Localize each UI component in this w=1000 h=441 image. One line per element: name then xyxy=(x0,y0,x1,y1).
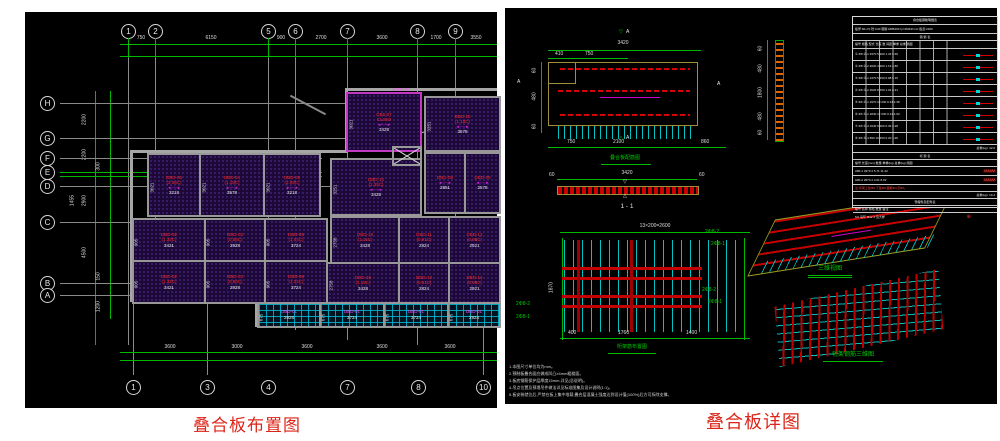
slab-dim: 3724 xyxy=(291,243,301,249)
dim-text: 60 xyxy=(759,46,764,52)
edge-bar xyxy=(630,240,633,332)
slab-side-dim: 675 xyxy=(258,314,263,322)
layout-drawing-panel: 1 2 5 6 7 8 9 750 6150 900 2700 3600 170… xyxy=(25,12,497,408)
slab-side-dim: 2758 xyxy=(329,280,334,290)
slab-panel: DBD-10(1.35C)◄──►34283251 xyxy=(330,158,422,216)
table-row: ⑤ Φ6 ④-1 1970 10 200 0.44 4.38 xyxy=(853,97,997,109)
slab-side-dim: 3021 xyxy=(349,119,354,129)
dim-line xyxy=(548,147,726,148)
slab-panel: DBD-05(1.04C)3724905 xyxy=(264,218,328,262)
grid-label: 5 xyxy=(266,27,270,36)
table-band: 钢 筋 表 xyxy=(853,34,997,41)
dim-line xyxy=(560,232,750,233)
dim-text: 3600 xyxy=(444,345,455,350)
embed-part-icon: ⊕ xyxy=(967,215,971,220)
table-cell-text: ③ Φ8 ③-1 2470 5 150 0.98 5.15 xyxy=(855,77,898,80)
rebar-shape-icon xyxy=(963,103,993,104)
rebar-leader: 2Φ8-1 xyxy=(708,300,722,305)
table-header-text: 编号 长度(mm) 数量 单重(kg) 总重(kg) 简图 xyxy=(855,162,913,165)
grid-bubble: F xyxy=(40,151,55,166)
table-row: A80-1 3370 2 5.71 11.42∧∧∧∧∧∧ xyxy=(853,167,997,176)
grid-bubble: E xyxy=(40,165,55,180)
edge-section-strip xyxy=(775,40,784,142)
slab-side-dim: 675 xyxy=(320,314,325,322)
grid-label: 3 xyxy=(205,383,209,392)
grid-label: F xyxy=(45,154,50,163)
dim-text: 480 xyxy=(759,112,764,120)
rebar-shape-icon xyxy=(963,55,993,56)
dim-text: 1455 xyxy=(71,195,76,206)
table-cell-text: ⑧ Φ6 ⑤-4 890 10 250 0.20 1.96 xyxy=(855,137,898,140)
dim-text: 3550 xyxy=(470,36,481,41)
dim-line xyxy=(110,91,111,319)
table-cell-text: ⑥ Φ6 ④-2 1840 12 200 0.41 4.90 xyxy=(855,113,900,116)
grid-bubble: C xyxy=(40,215,55,230)
slab-panel: DBD-03(0.88C)2928905 xyxy=(204,218,266,262)
dim-tick xyxy=(128,38,129,60)
view-caption: 桁架钢筋三维图 xyxy=(832,352,874,358)
dim-text: 2900 xyxy=(83,195,88,206)
table-title-text: 叠合板钢筋明细表 xyxy=(913,19,937,22)
dim-text: 1700 xyxy=(430,36,441,41)
rebar-shape-icon xyxy=(963,67,993,68)
detail-drawing-panel: 3420 410 750 750 2100 860 60 480 60 ▽ A … xyxy=(505,8,997,404)
grid-bubble: 1 xyxy=(121,24,136,39)
table-cell-text: ② Φ8 ②-2 3020 4 200 1.19 4.80 xyxy=(855,65,898,68)
slab-panel: DBD-04(1.18C)◄──►35783021 xyxy=(199,153,265,217)
dim-text: 150 xyxy=(97,272,102,280)
grid-label: 4 xyxy=(266,383,270,392)
dim-tick xyxy=(155,38,156,60)
dim-text: 2200 xyxy=(83,114,88,125)
dim-text: 750 xyxy=(137,36,145,41)
dim-line xyxy=(120,56,497,57)
right-drawing-title: 叠合板详图 xyxy=(706,408,801,434)
dim-text: 750 xyxy=(567,140,575,145)
slab-dim: 3724 xyxy=(347,315,357,321)
table-total-row: 总重(kg): 42.6 xyxy=(853,145,997,153)
grid-bubble: 3 xyxy=(200,380,215,395)
table-total-text: 总重(kg): 19.4 xyxy=(976,194,995,197)
table-cell-text: ① Φ8 ②-1 3370 5 200 1.33 6.65 xyxy=(855,53,898,56)
slab-side-dim: 675 xyxy=(448,314,453,322)
slab-panel: DBD-11(0.91C)2824 xyxy=(398,216,450,264)
table-header-text: 编号 名称 规格 数量 备注 xyxy=(855,208,888,211)
table-row: M1 吊环 Φ12 4 见大样⊕ xyxy=(853,213,997,222)
table-note-row: 注:桁架上弦Φ8,下弦Φ8,腹筋Φ4,高80。 xyxy=(853,185,997,192)
general-note: 3.板底钢筋保护层厚度15mm,详见(总说明)。 xyxy=(509,378,587,384)
table-row: ① Φ8 ②-1 3370 5 200 1.33 6.65 xyxy=(853,49,997,61)
table-cell-text: A80-2 2670 2 4.01 8.02 xyxy=(855,179,886,182)
dim-text: 60 xyxy=(533,68,538,74)
grid-label: 8 xyxy=(415,27,419,36)
slab-dim: 3218 xyxy=(169,190,179,196)
slab-dim: 2928 xyxy=(284,315,294,321)
dim-line xyxy=(557,179,697,180)
slab-panel: DBD-05(1.04C)3724905 xyxy=(264,260,328,304)
dim-tick xyxy=(268,38,269,60)
table-row: ⑧ Φ6 ⑤-4 890 10 250 0.20 1.96 xyxy=(853,133,997,145)
slab-side-dim: 3251 xyxy=(333,184,338,194)
grid-bubble: D xyxy=(40,179,55,194)
slab-dim: 3428 xyxy=(371,192,381,198)
rebar-leader: 2Φ8-1 xyxy=(711,242,725,247)
dim-tick xyxy=(347,38,348,60)
slab-panel: DBD-012928675 xyxy=(257,302,321,328)
general-note: 5.板安装就位后,严禁在板上集中堆载,叠合层混凝土强度达到设计值(100%)后方… xyxy=(509,392,671,398)
table-header: 编号 规格 型式 长度 数 间距 单重 总重 简图 xyxy=(853,41,997,49)
grid-line xyxy=(133,300,134,375)
section-mark-label: A xyxy=(626,136,629,141)
rebar-leader: 2Φ8-1 xyxy=(516,315,530,320)
slab-dim: 2921 xyxy=(469,243,479,249)
slab-side-dim: 3251 xyxy=(427,121,432,131)
slab-panel: DBD-02(1.32C)3421905 xyxy=(132,218,206,262)
grid-bubble: 2 xyxy=(148,24,163,39)
table-row: ③ Φ8 ③-1 2470 5 150 0.98 5.15 xyxy=(853,73,997,85)
grid-bubble: H xyxy=(40,96,55,111)
break-mark: △ xyxy=(623,194,627,199)
grid-label: C xyxy=(45,218,51,227)
frame-line xyxy=(744,238,745,340)
grid-bubble: 5 xyxy=(261,24,276,39)
rebar-row xyxy=(558,90,690,92)
dim-text: 60 xyxy=(533,124,538,130)
section-mark-label: A xyxy=(626,30,629,35)
dim-text: 3420 xyxy=(621,171,632,176)
grid-label: B xyxy=(45,279,50,288)
section-mark: △ xyxy=(619,136,623,141)
general-note: 1.本图尺寸单位均为mm。 xyxy=(509,364,555,370)
dim-text: 60 xyxy=(699,173,705,178)
table-cell-text: ④ Φ8 ③-2 2620 8 150 1.04 8.31 xyxy=(855,89,898,92)
slab-side-dim: 905 xyxy=(265,281,270,289)
dim-text: 3000 xyxy=(231,345,242,350)
dim-text: 2700 xyxy=(315,36,326,41)
rebar-leader: 2Φ8-2 xyxy=(702,288,716,293)
dim-text: 750 xyxy=(585,52,593,57)
grid-label: E xyxy=(45,168,50,177)
grid-label: 7 xyxy=(345,383,349,392)
slab-panel: DBD-15(1.18C)◄──►35783251 xyxy=(424,96,501,152)
dim-text: 60 xyxy=(549,173,555,178)
slab-panel: DBD-13(0.91C)2824 xyxy=(398,262,450,304)
grid-label: D xyxy=(45,182,51,191)
slab-side-dim: 905 xyxy=(133,239,138,247)
slab-panel: DBD-14(0.95C)2921 xyxy=(448,262,501,304)
dim-line xyxy=(767,40,768,140)
edge-bar xyxy=(577,240,580,332)
slab-dim: 3578 xyxy=(227,190,237,196)
dim-text: 410 xyxy=(555,52,563,57)
dim-text: 480 xyxy=(759,64,764,72)
slab-panel: DBD-12(0.95C)2921 xyxy=(448,216,501,264)
slab-dim: 2928 xyxy=(230,285,240,291)
truss-shape-icon: ∧∧∧∧∧∧ xyxy=(983,178,995,182)
caption-underline xyxy=(601,164,651,165)
grid-label: 8 xyxy=(416,383,420,392)
grid-bubble: 8 xyxy=(411,380,426,395)
dim-line xyxy=(120,360,497,361)
dim-text: 480 xyxy=(533,92,538,100)
view-caption: 叠合板配筋图 xyxy=(610,156,640,161)
dim-text: 1400 xyxy=(686,331,697,336)
dim-text: 6150 xyxy=(205,36,216,41)
caption-underline xyxy=(608,353,656,354)
break-mark: ▽ xyxy=(623,180,627,185)
grid-line xyxy=(60,138,346,139)
slab-side-dim: 905 xyxy=(133,281,138,289)
table-cell-text: M1 吊环 Φ12 4 见大样 xyxy=(855,216,885,219)
caption-underline xyxy=(808,277,852,278)
dim-text: 3600 xyxy=(301,345,312,350)
rebar-row xyxy=(560,68,690,70)
table-band: 预埋件及配件表 xyxy=(853,199,997,206)
table-header-text: 编号 规格 型式 长度 数 间距 单重 总重 简图 xyxy=(855,43,913,46)
slab-panel: DBD-013724675 xyxy=(319,302,385,328)
table-band-text: 桁 架 表 xyxy=(920,155,931,158)
dim-text: 1800 xyxy=(759,87,764,98)
grid-label: 9 xyxy=(453,27,457,36)
slab-plan-notch xyxy=(548,62,576,84)
table-title: 叠合板钢筋明细表 xyxy=(853,17,997,25)
section-mark-label: A xyxy=(717,82,720,87)
table-total-text: 总重(kg): 42.6 xyxy=(976,147,995,150)
grid-label: 10 xyxy=(479,383,488,392)
dim-line xyxy=(120,44,497,45)
distribution-bars xyxy=(564,240,744,332)
slab-dim: 3428 xyxy=(358,286,368,292)
general-note: 2.预制板叠合面应做成凹凸≥4mm粗糙面。 xyxy=(509,371,583,377)
slab-dim: 2928 xyxy=(230,243,240,249)
dim-tick xyxy=(417,38,418,60)
table-cell-text: ⑦ Φ6 ④-3 1640 9 200 0.36 3.28 xyxy=(855,125,898,128)
rebar-leader: 2Φ8-2 xyxy=(705,230,719,235)
table-band: 桁 架 表 xyxy=(853,153,997,160)
table-row: ⑥ Φ6 ④-2 1840 12 200 0.41 4.90 xyxy=(853,109,997,121)
cad-screenshot: 1 2 5 6 7 8 9 750 6150 900 2700 3600 170… xyxy=(0,0,1000,441)
slab-dim: 3724 xyxy=(291,285,301,291)
slab-side-dim: 3021 xyxy=(266,182,271,192)
slab-dim: 2578 xyxy=(477,185,487,191)
dim-text: 3600 xyxy=(376,345,387,350)
dim-text: 860 xyxy=(701,140,709,145)
general-note: 4.吊点位置及预埋吊件做法详见标准图集及设计说明(1:1)。 xyxy=(509,385,613,391)
slab-dim: 2824 xyxy=(419,243,429,249)
table-cell-text: A80-1 3370 2 5.71 11.42 xyxy=(855,170,888,173)
grid-bubble: 4 xyxy=(261,380,276,395)
dim-text: 1200 xyxy=(97,301,102,312)
slab-side-dim: 905 xyxy=(205,239,210,247)
slab-panel: DBD-06(2.08C)◄──►32183021 xyxy=(147,153,201,217)
dim-line xyxy=(548,58,628,59)
grid-line xyxy=(128,58,129,345)
dim-tick xyxy=(455,38,456,60)
slab-panel: DBD-03(0.88C)2928905 xyxy=(204,260,266,304)
slab-side-dim: 675 xyxy=(384,314,389,322)
rebar-shape-icon xyxy=(963,127,993,128)
grid-line xyxy=(60,222,132,223)
rebar-leader: 2Φ8-2 xyxy=(516,302,530,307)
slab-panel: DBD-16(1.15C)34282758 xyxy=(326,262,400,304)
caption-underline xyxy=(808,275,852,276)
dim-line xyxy=(541,62,542,133)
rebar-shape-icon xyxy=(963,115,993,116)
dim-text: 3420 xyxy=(617,41,628,46)
view-caption: 桁架筋布置图 xyxy=(617,345,647,350)
grid-label: 6 xyxy=(293,27,297,36)
slab-dim: 3428 xyxy=(379,127,389,133)
rebar-schedule-table: 叠合板钢筋明细表 板厚:60+70 砼:C30 钢筋:HRB400 fy=360… xyxy=(852,16,998,208)
table-note-text: 注:桁架上弦Φ8,下弦Φ8,腹筋Φ4,高80。 xyxy=(855,187,907,190)
dim-text: 3600 xyxy=(376,36,387,41)
slab-dim: 2921 xyxy=(469,286,479,292)
grid-label: 1 xyxy=(126,27,130,36)
slab-dim: 2851 xyxy=(440,185,450,191)
dim-text: 1870 xyxy=(550,282,555,293)
section-mark: ▽ xyxy=(619,30,623,35)
slab-dim: 2824 xyxy=(419,286,429,292)
grid-label: G xyxy=(44,134,50,143)
stair-opening xyxy=(392,146,422,166)
section-label: 1 - 1 xyxy=(620,204,633,211)
slab-panel: DBD-09◄──►2578 xyxy=(464,152,501,214)
section-mark-label: A xyxy=(517,80,520,85)
grid-bubble: A xyxy=(40,288,55,303)
slab-panel: DBD-013724675 xyxy=(383,302,449,328)
left-drawing-title: 叠合板布置图 xyxy=(193,411,301,436)
table-row: ② Φ8 ②-2 3020 4 200 1.19 4.80 xyxy=(853,61,997,73)
grid-bubble: 6 xyxy=(288,24,303,39)
table-header: 编号 长度(mm) 数量 单重(kg) 总重(kg) 简图 xyxy=(853,160,997,167)
grid-bubble: 7 xyxy=(340,24,355,39)
dim-text: 3600 xyxy=(164,345,175,350)
grid-label: 2 xyxy=(153,27,157,36)
section-1-1-outline xyxy=(557,186,699,195)
table-cell-text: ⑤ Φ6 ④-1 1970 10 200 0.44 4.38 xyxy=(855,101,900,104)
table-band-text: 预埋件及配件表 xyxy=(914,201,935,204)
slab-dim: 3428 xyxy=(360,243,370,249)
table-row: ⑦ Φ6 ④-3 1640 9 200 0.36 3.28 xyxy=(853,121,997,133)
dim-text: 900 xyxy=(277,36,285,41)
grid-label: 7 xyxy=(345,27,349,36)
slab-panel: DB6-07CL08O◄──►34283021 xyxy=(346,92,422,152)
table-info-text: 板厚:60+70 砼:C30 钢筋:HRB400 fy=360N/mm² 板宽:… xyxy=(855,28,933,31)
dim-line xyxy=(548,50,701,51)
view-caption: 三维视图 xyxy=(818,266,842,272)
wall-line xyxy=(345,88,497,91)
rebar-shape-icon xyxy=(963,79,993,80)
grid-line xyxy=(483,325,484,375)
table-band-text: 钢 筋 表 xyxy=(920,36,931,39)
grid-bubble: 7 xyxy=(340,380,355,395)
table-row: ④ Φ8 ③-2 2620 8 150 1.04 8.31 xyxy=(853,85,997,97)
dim-text: 1760 xyxy=(618,331,629,336)
dim-text: 4500 xyxy=(83,247,88,258)
dim-text: 13×200=2600 xyxy=(640,224,671,229)
grid-bubble: G xyxy=(40,131,55,146)
slab-panel: DBD-012924675 xyxy=(447,302,501,328)
dim-text: 400 xyxy=(568,331,576,336)
dim-line xyxy=(560,338,750,339)
slab-panel: DBD-08◄──►2851 xyxy=(424,152,466,214)
rebar-shape-icon xyxy=(963,139,993,140)
grid-bubble: 9 xyxy=(448,24,463,39)
slab-panel: DBD-02(1.32C)3421905 xyxy=(132,260,206,304)
slab-dim: 3578 xyxy=(457,129,467,135)
slab-dim: 3421 xyxy=(164,243,174,249)
slab-side-dim: 905 xyxy=(265,239,270,247)
dim-tick xyxy=(295,38,296,60)
dim-text: 60 xyxy=(759,130,764,136)
slab-dim: 2924 xyxy=(469,315,479,321)
grid-bubble: 8 xyxy=(410,24,425,39)
grid-label: 1 xyxy=(131,383,135,392)
slab-panel: DBD-06(2.08C)◄──►32183021 xyxy=(263,153,321,217)
truss-bar xyxy=(600,97,660,98)
table-total-row: 总重(kg): 19.4 xyxy=(853,192,997,199)
truss-bar xyxy=(831,230,871,237)
dim-line xyxy=(120,352,497,353)
slab-dim: 3218 xyxy=(287,190,297,196)
table-row: A80-2 2670 2 4.01 8.02∧∧∧∧∧∧ xyxy=(853,176,997,185)
slab-dim: 3421 xyxy=(164,285,174,291)
slab-side-dim: 2758 xyxy=(333,237,338,247)
table-info-row: 板厚:60+70 砼:C30 钢筋:HRB400 fy=360N/mm² 板宽:… xyxy=(853,25,997,34)
slab-tag: 1025130 xyxy=(392,88,410,93)
slab-side-dim: 3021 xyxy=(150,182,155,192)
frame-line xyxy=(562,238,563,340)
slab-panel: DBD-18(1.15C)34282758 xyxy=(330,216,400,264)
table-header: 编号 名称 规格 数量 备注 xyxy=(853,206,997,213)
grid-label: H xyxy=(45,99,51,108)
rebar-row xyxy=(560,114,690,116)
grid-bubble: 1 xyxy=(126,380,141,395)
dim-text: 300 xyxy=(97,162,102,170)
truss-shape-icon: ∧∧∧∧∧∧ xyxy=(983,169,995,173)
rebar-shape-icon xyxy=(963,91,993,92)
slab-side-dim: 3021 xyxy=(202,182,207,192)
slab-dim: 3724 xyxy=(411,315,421,321)
slab-side-dim: 905 xyxy=(205,281,210,289)
caption-underline xyxy=(823,361,883,362)
grid-bubble: 10 xyxy=(476,380,491,395)
grid-label: A xyxy=(45,291,50,300)
